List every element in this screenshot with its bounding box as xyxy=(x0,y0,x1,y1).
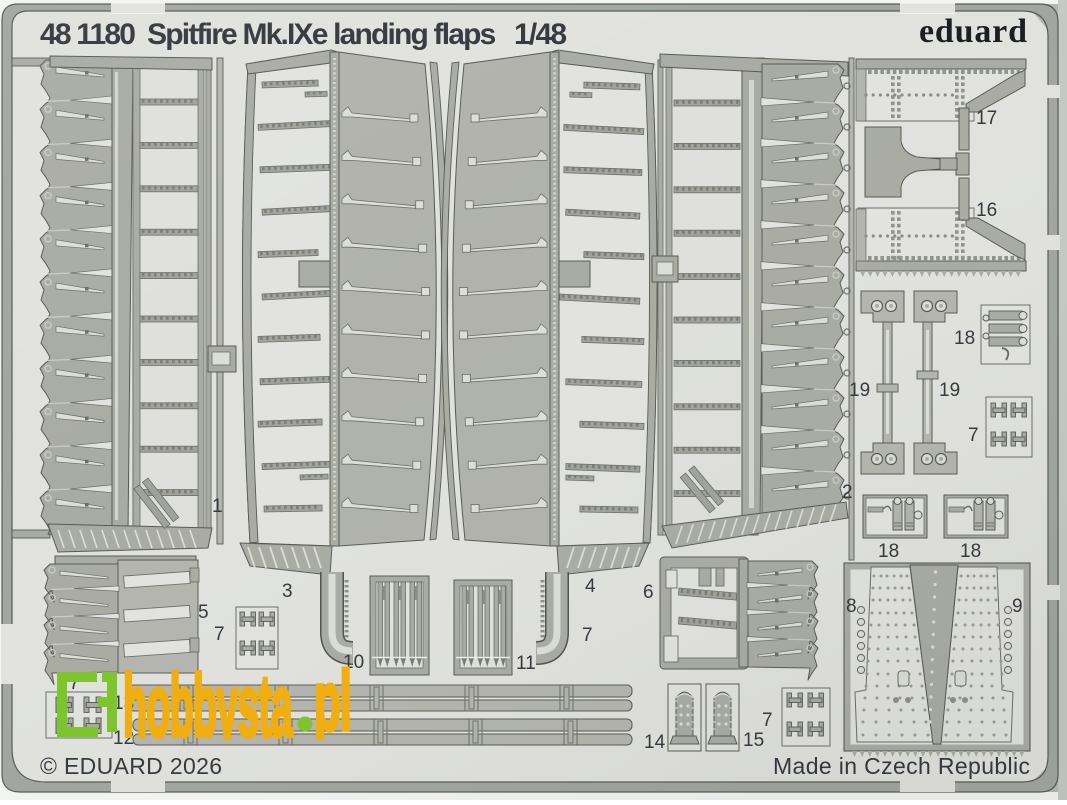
svg-text:pl: pl xyxy=(314,655,351,749)
